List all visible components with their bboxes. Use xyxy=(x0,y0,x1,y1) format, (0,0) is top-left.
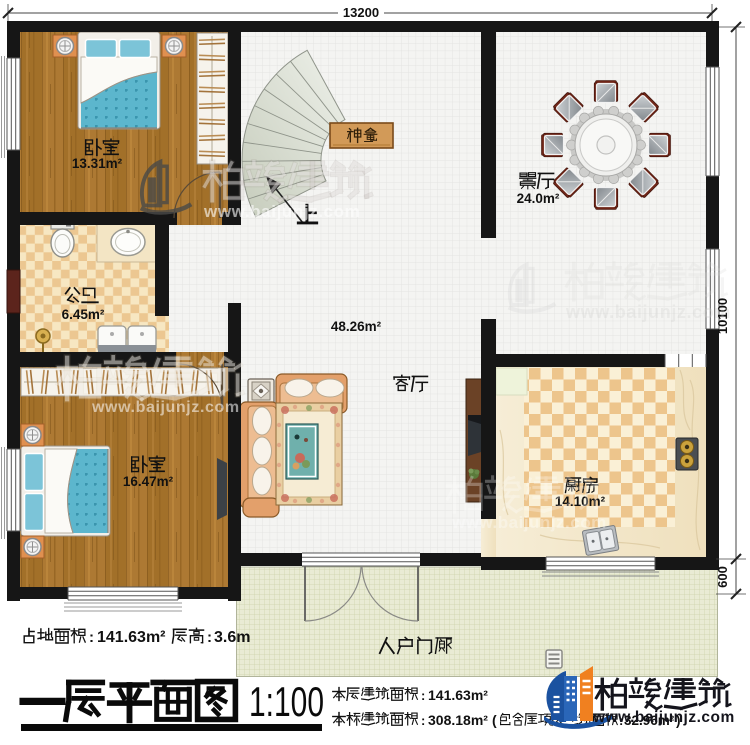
svg-text:www.baijunjz.com: www.baijunjz.com xyxy=(203,202,360,221)
svg-text:13.31m²: 13.31m² xyxy=(72,156,123,171)
svg-text:1:100: 1:100 xyxy=(249,678,324,725)
svg-text:13200: 13200 xyxy=(343,5,379,20)
svg-text::: : xyxy=(421,688,425,703)
svg-text:48.26m²: 48.26m² xyxy=(331,319,382,334)
svg-text:147,487: 147,487 xyxy=(0,0,4,1)
svg-text:www.baijunjz.com: www.baijunjz.com xyxy=(451,513,607,532)
svg-text:16.47m²: 16.47m² xyxy=(123,474,174,489)
svg-text:www.baijunjz.com: www.baijunjz.com xyxy=(592,709,735,726)
svg-text:www.baijunjz.com: www.baijunjz.com xyxy=(565,302,731,322)
svg-text::: : xyxy=(421,713,425,728)
svg-text:600: 600 xyxy=(715,566,730,588)
svg-text:3.6m: 3.6m xyxy=(214,629,250,646)
svg-text:(: ( xyxy=(492,712,497,728)
svg-text:141.63m²: 141.63m² xyxy=(97,629,166,646)
svg-text:www.baijunjz.com: www.baijunjz.com xyxy=(91,399,240,416)
svg-text::: : xyxy=(89,629,94,646)
svg-text:24.0m²: 24.0m² xyxy=(517,191,560,206)
svg-text::: : xyxy=(207,629,212,646)
svg-text:141.63m²: 141.63m² xyxy=(428,687,488,703)
svg-text:6.45m²: 6.45m² xyxy=(62,307,105,322)
svg-text:308.18m²: 308.18m² xyxy=(428,712,488,728)
